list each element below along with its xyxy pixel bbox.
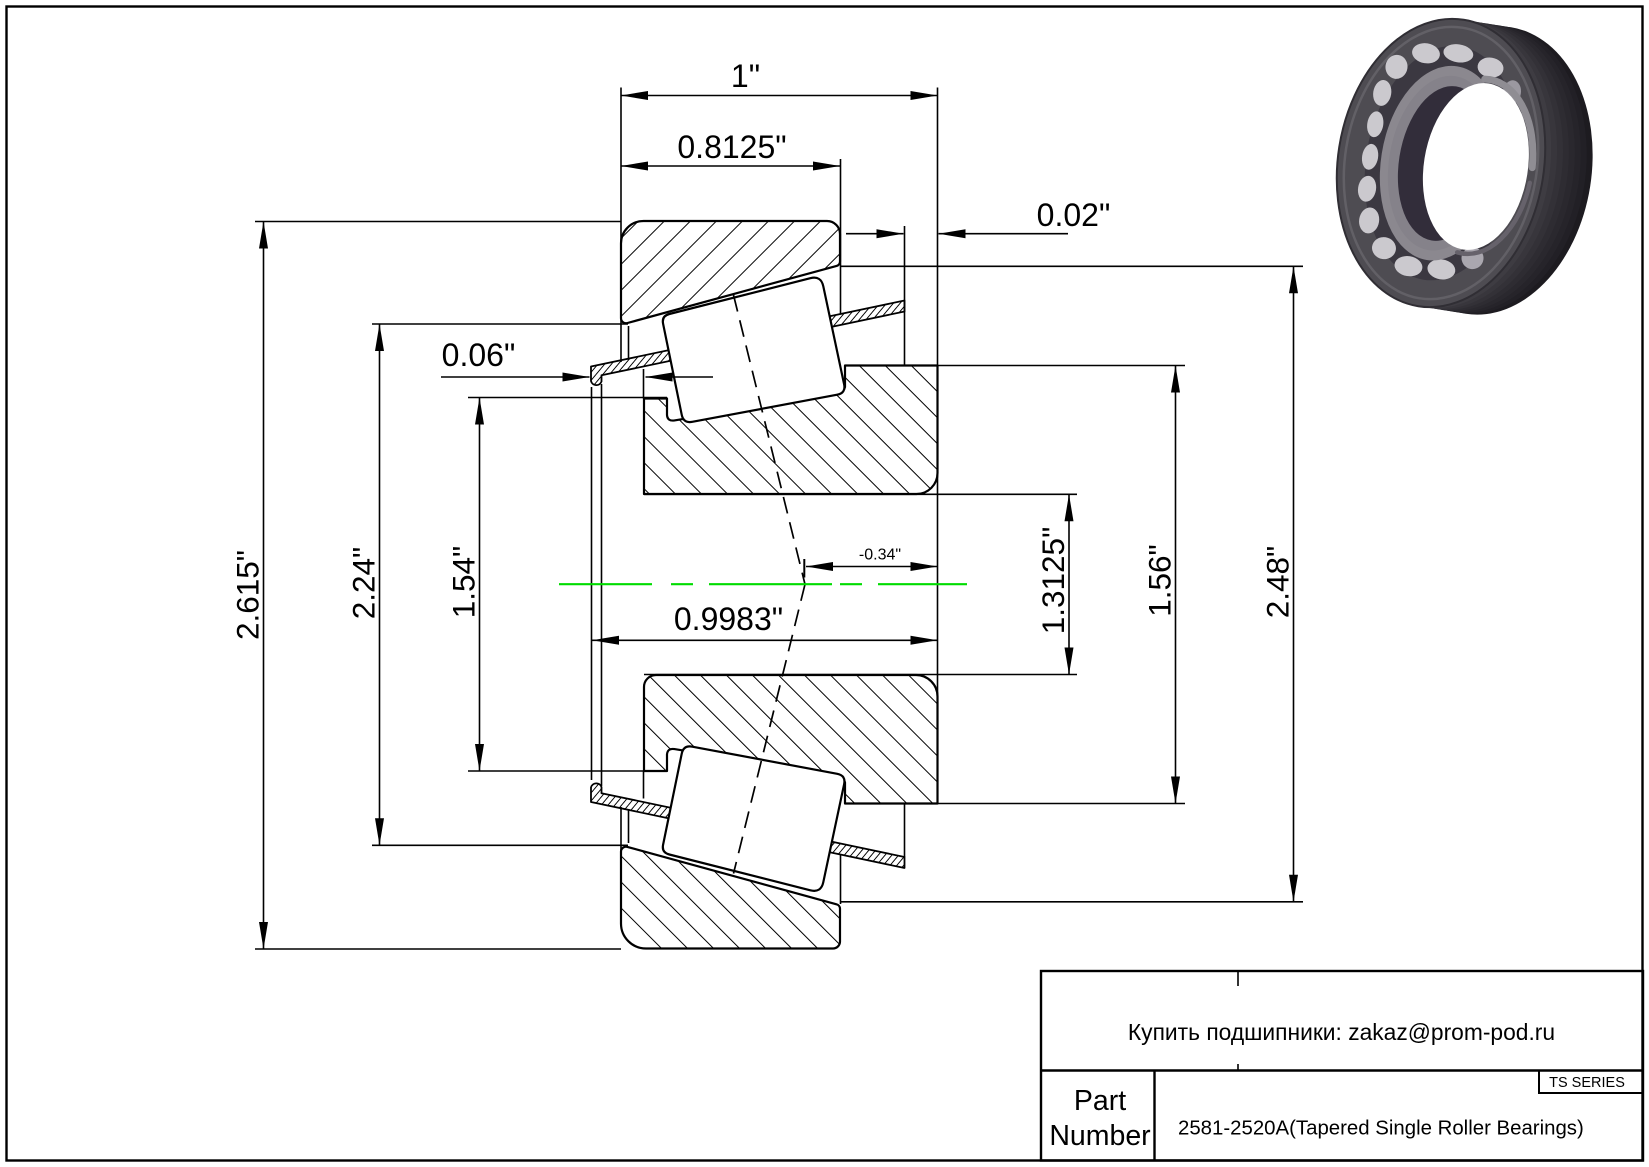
svg-text:0.06": 0.06" <box>442 337 516 373</box>
svg-text:Part: Part <box>1074 1085 1126 1117</box>
svg-text:1.3125": 1.3125" <box>1035 527 1071 635</box>
svg-text:1": 1" <box>731 58 760 94</box>
svg-text:0.9983": 0.9983" <box>674 601 783 637</box>
svg-text:0.02": 0.02" <box>1037 197 1111 233</box>
svg-text:2.48": 2.48" <box>1260 546 1296 619</box>
svg-text:Купить подшипники: zakaz@prom-: Купить подшипники: zakaz@prom-pod.ru <box>1128 1019 1555 1045</box>
svg-text:1.56": 1.56" <box>1142 544 1178 617</box>
svg-text:2.615": 2.615" <box>230 550 266 640</box>
svg-text:1.54": 1.54" <box>446 546 482 619</box>
svg-text:2.24": 2.24" <box>346 547 382 620</box>
svg-text:-0.34": -0.34" <box>859 547 901 564</box>
svg-text:Number: Number <box>1049 1120 1151 1152</box>
svg-text:2581-2520A(Tapered Single Roll: 2581-2520A(Tapered Single Roller Bearing… <box>1178 1118 1584 1140</box>
svg-text:0.8125": 0.8125" <box>677 129 786 165</box>
svg-text:TS SERIES: TS SERIES <box>1549 1075 1625 1091</box>
